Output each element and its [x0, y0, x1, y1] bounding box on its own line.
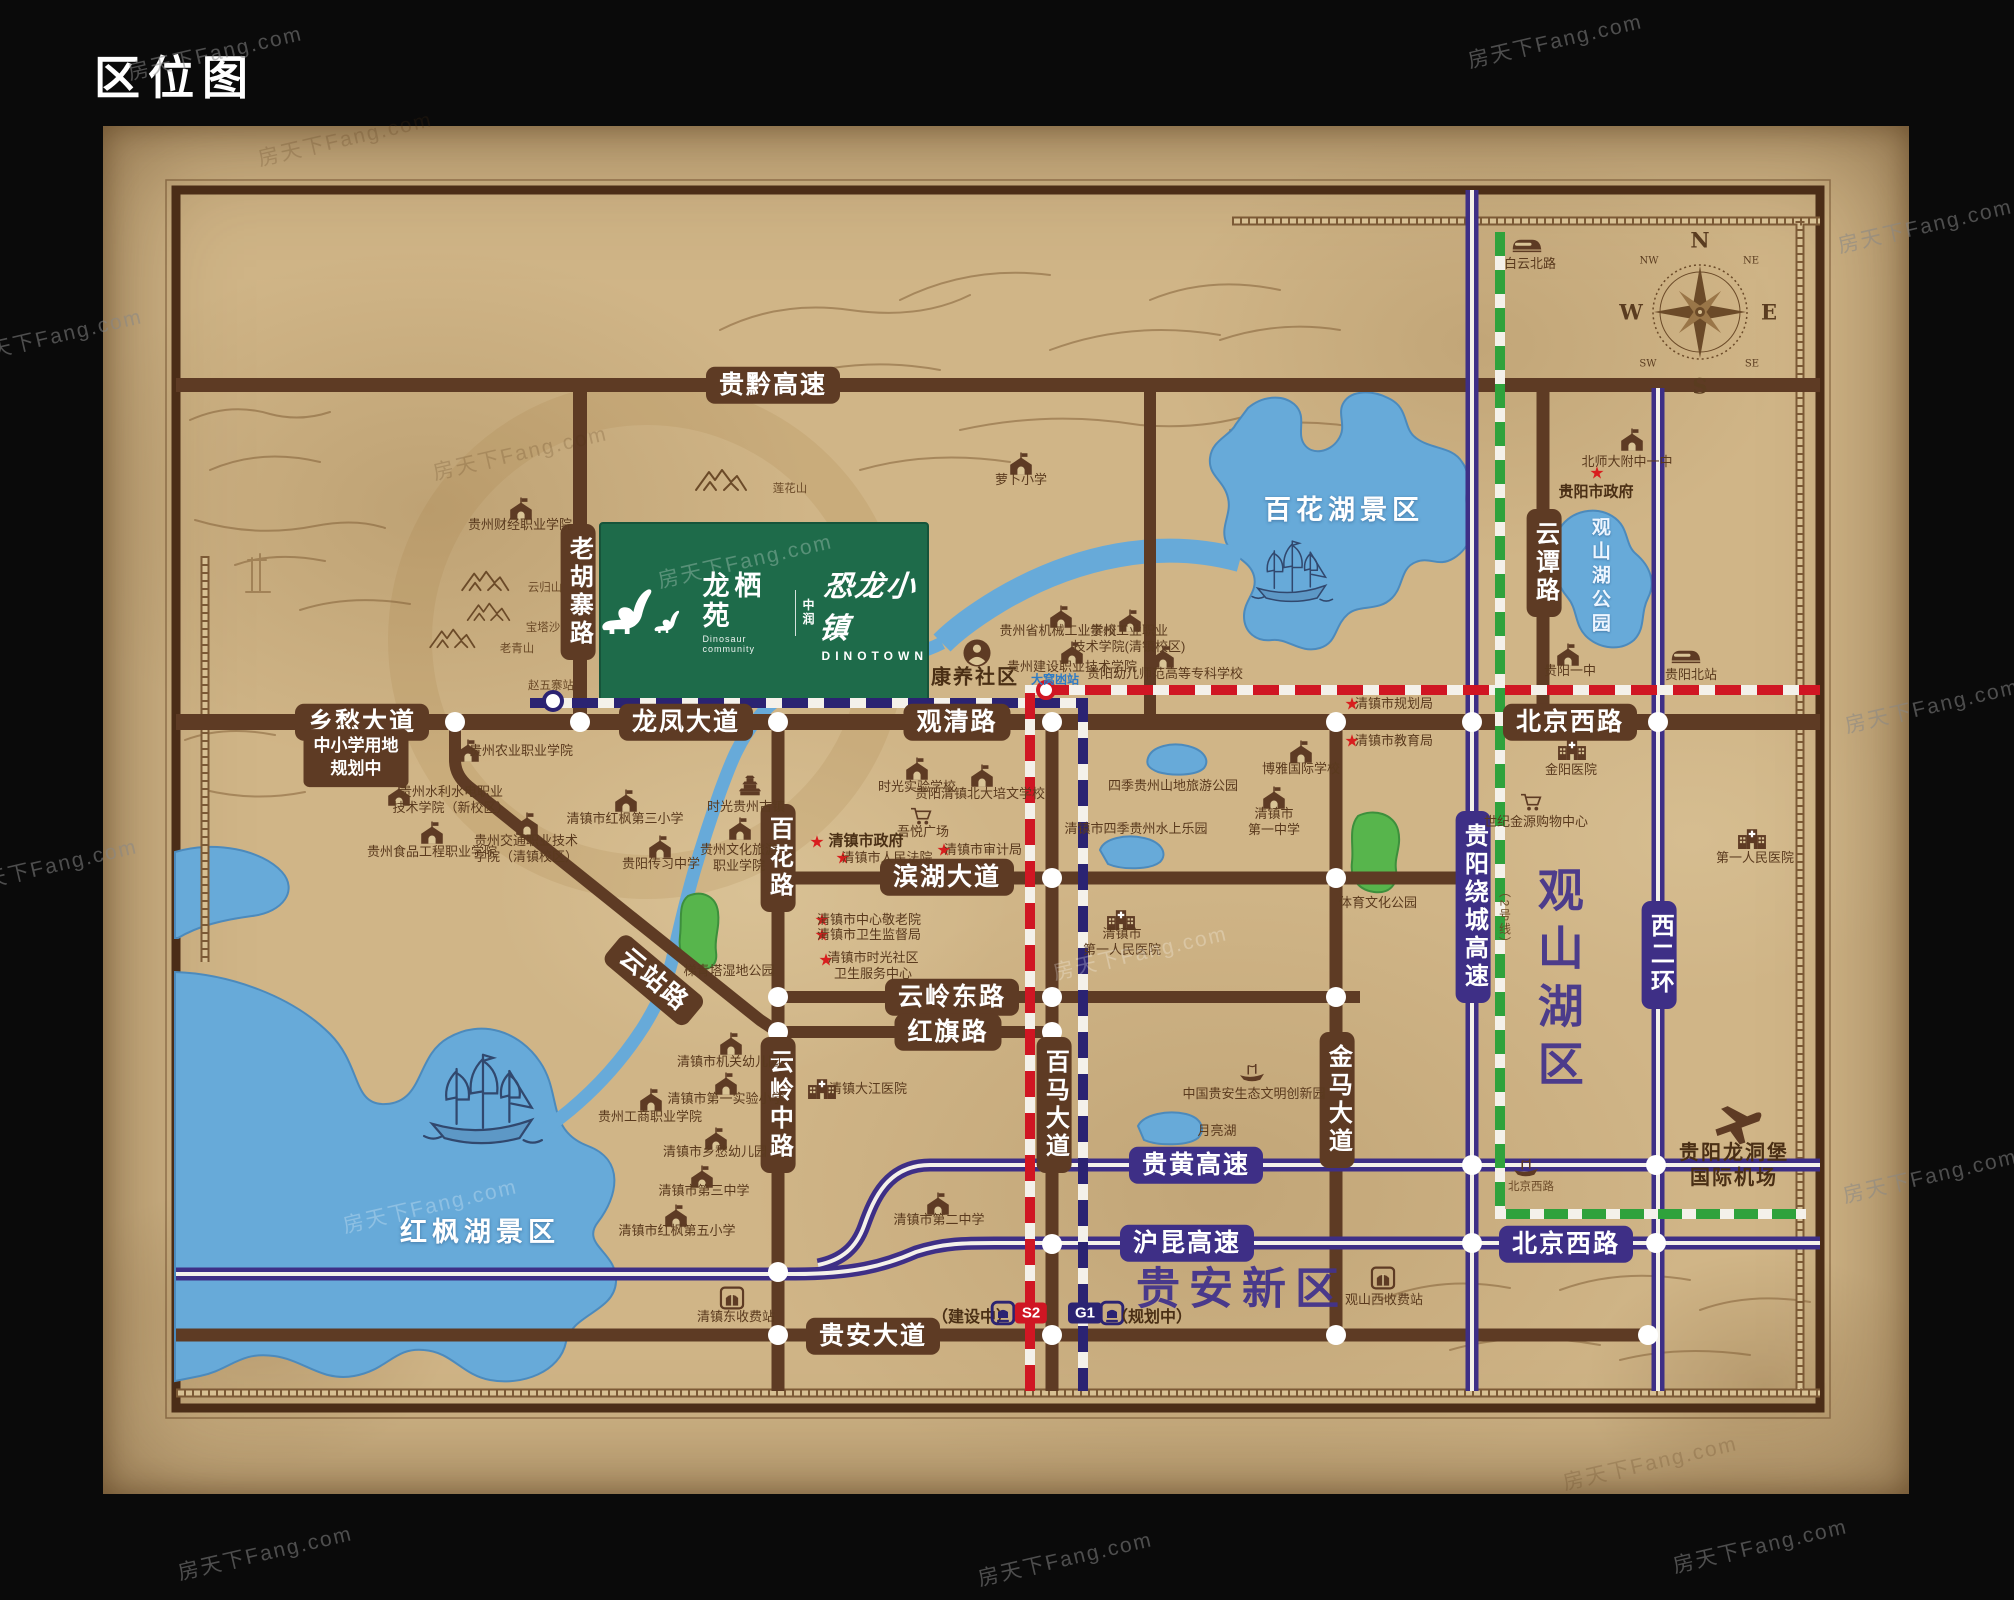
watermark: 房天下Fang.com [1670, 1510, 1851, 1579]
poi-label: 清镇市乡愁幼儿园 [663, 1144, 767, 1160]
star-label: 清镇市时光社区 卫生服务中心 [827, 950, 918, 983]
poi-label: 清镇市 第一人民医院 [1083, 926, 1161, 959]
poi-label: 贵阳幼儿师范高等专科学校 [1087, 666, 1243, 682]
poi-label: 博雅国际学校 [1262, 761, 1340, 777]
school-icon [419, 822, 445, 845]
poi-label: 贵州财经职业学院 [468, 517, 572, 533]
map-label: 云归山 [528, 581, 563, 595]
poi-label: 贵州农业职业学院 [469, 743, 573, 759]
star-label: 清镇市规划局 [1355, 696, 1433, 712]
boat-icon [1511, 1158, 1541, 1178]
road-label: 北京西路 [1499, 1226, 1633, 1263]
school-icon [969, 765, 995, 788]
map-label: 观山湖区 [1528, 866, 1586, 1098]
poi-label: 贵州水利水电职业 技术学院（新校区） [392, 784, 509, 817]
poi-label: 萝卜小学 [995, 472, 1047, 488]
road-label: 观清路 [903, 704, 1010, 741]
school-icon [904, 758, 930, 781]
toll-icon [720, 1287, 745, 1310]
watermark: 房天下Fang.com [430, 417, 611, 486]
map-label: 莲花山 [773, 482, 808, 496]
poi-label: 贵阳清镇北大培文学校 [915, 786, 1045, 802]
road-label: 云岭东路 [885, 979, 1019, 1016]
school-icon [613, 790, 639, 813]
compass-letter: S [1692, 374, 1707, 399]
map-label: 红枫湖景区 [400, 1216, 560, 1250]
road-label: 百马大道 [1037, 1037, 1072, 1173]
poi-label: 北京西路 [1508, 1180, 1554, 1194]
watermark: 房天下Fang.com [175, 1517, 356, 1586]
poi-label: 贵州交通职业技术 学院（清镇校区） [474, 833, 578, 866]
poi-label: 贵阳传习中学 [622, 856, 700, 872]
watermark: 房天下Fang.com [0, 300, 145, 369]
poi-label: 清镇大江医院 [829, 1081, 907, 1097]
map-label: 月亮湖 [1197, 1123, 1236, 1139]
location-map-page: 区位图 [0, 0, 2014, 1600]
watermark: 房天下Fang.com [1465, 5, 1646, 74]
map-label: （2号线） [1497, 886, 1512, 951]
star-label: 贵阳市政府 [1558, 484, 1633, 503]
compass-letter: NE [1743, 256, 1759, 267]
poi-label: 清镇市红枫第五小学 [618, 1223, 735, 1239]
watermark: 房天下Fang.com [1560, 1427, 1741, 1496]
school-icon [1619, 429, 1645, 452]
poi-label: 贵州文化旅游 职业学院 [700, 842, 778, 875]
map-label: 四季贵州山地旅游公园 [1108, 778, 1238, 794]
poi-label: 贵阳龙洞堡 国际机场 [1679, 1141, 1789, 1191]
watermark: 房天下Fang.com [1835, 190, 2014, 259]
train-icon [1512, 238, 1542, 253]
watermark: 房天下Fang.com [255, 103, 436, 172]
town-icon [738, 775, 763, 796]
star-label: 清镇市中心敬老院 [817, 912, 921, 928]
map-label: 老青山 [500, 642, 535, 656]
road-label: 贵黔高速 [706, 367, 840, 404]
poi-label: 金阳医院 [1545, 762, 1597, 778]
compass-letter: NW [1639, 256, 1658, 267]
poi-label: 时光贵州古镇 [707, 799, 785, 815]
map-label: 康养社区 [931, 666, 1019, 691]
poi-label: 贵州工商职业学院 [598, 1109, 702, 1125]
watermark: 房天下Fang.com [125, 17, 306, 86]
poi-label: 第一人民医院 [1716, 850, 1794, 866]
road-label: 老胡寨路 [561, 524, 596, 660]
watermark: 房天下Fang.com [1840, 1140, 2014, 1209]
compass-letter: E [1761, 300, 1777, 325]
compass-letter: N [1690, 228, 1709, 253]
toll-icon [1371, 1267, 1396, 1290]
poi-label: 贵阳北站 [1665, 667, 1717, 683]
map-label: 观山湖公园 [1587, 517, 1611, 637]
star-icon: ★ [809, 834, 824, 851]
road-label: 红旗路 [894, 1014, 1001, 1051]
cart-icon [1520, 792, 1543, 812]
map-label: 体育文化公园 [1339, 895, 1417, 911]
compass-letter: W [1619, 300, 1643, 325]
poi-label: 清镇市机关幼儿园 [677, 1054, 781, 1070]
watermark: 房天下Fang.com [1842, 670, 2014, 739]
person-icon [963, 639, 992, 668]
hospital-icon [1737, 827, 1767, 849]
hospital-icon [1557, 738, 1587, 760]
watermark: 房天下Fang.com [975, 1523, 1156, 1592]
poi-label: 中国贵安生态文明创新园 [1182, 1086, 1325, 1102]
compass-letter: SE [1745, 359, 1759, 370]
train-icon [1671, 649, 1701, 664]
poi-label: 清镇市第三中学 [658, 1183, 749, 1199]
poi-label: 白云北路 [1504, 256, 1556, 272]
map-label: 宝塔沙 [526, 621, 561, 635]
compass-letter: SW [1639, 359, 1656, 370]
map-label: 赵五寨站 [528, 679, 574, 693]
star-label: 清镇市卫生监督局 [817, 927, 921, 943]
poi-label: 清镇市红枫第三小学 [566, 811, 683, 827]
road-label: 云谭路 [1527, 509, 1562, 617]
star-label: 清镇市人民法院 [841, 850, 932, 866]
map-label: 贵安新区 [1136, 1262, 1348, 1317]
school-icon [718, 1033, 744, 1056]
boat-icon [1237, 1063, 1267, 1083]
poi-label: 清镇市第一实验小学 [667, 1091, 784, 1107]
poi-label: 吾悦广场 [897, 824, 949, 840]
road-label: 中小学用地 规划中 [304, 729, 409, 787]
poi-label: 世纪金源购物中心 [1484, 814, 1588, 830]
road-label: 北京西路 [1503, 704, 1637, 741]
poi-label: 清镇东收费站 [697, 1309, 775, 1325]
road-label: 贵安大道 [806, 1318, 940, 1355]
poi-label: 贵阳一中 [1544, 663, 1596, 679]
road-label: 龙凤大道 [619, 704, 753, 741]
road-label: 西二环 [1642, 901, 1677, 1009]
watermark: 房天下Fang.com [655, 525, 836, 594]
road-label: 贵阳绕城高速 [1456, 811, 1491, 1003]
star-label: 清镇市教育局 [1355, 733, 1433, 749]
star-label: 清镇市审计局 [944, 842, 1022, 858]
map-label: 清镇市四季贵州水上乐园 [1064, 821, 1207, 837]
road-label: 贵黄高速 [1129, 1147, 1263, 1184]
school-icon [727, 818, 753, 841]
star-icon: ★ [1589, 465, 1604, 482]
label-layer: 贵黔高速乡愁大道龙凤大道观清路北京西路滨湖大道云岭东路红旗路贵安大道云站路老胡寨… [0, 0, 2014, 1600]
road-label: 沪昆高速 [1120, 1225, 1254, 1262]
poi-label: 清镇市 第一中学 [1248, 806, 1300, 839]
map-label: 百花湖景区 [1264, 494, 1424, 528]
road-label: 云站路 [601, 932, 706, 1029]
poi-label: 清镇市第二中学 [893, 1212, 984, 1228]
watermark: 房天下Fang.com [0, 830, 140, 899]
poi-label: 观山西收费站 [1345, 1292, 1423, 1308]
map-label: 梯青塔湿地公园 [683, 963, 774, 979]
